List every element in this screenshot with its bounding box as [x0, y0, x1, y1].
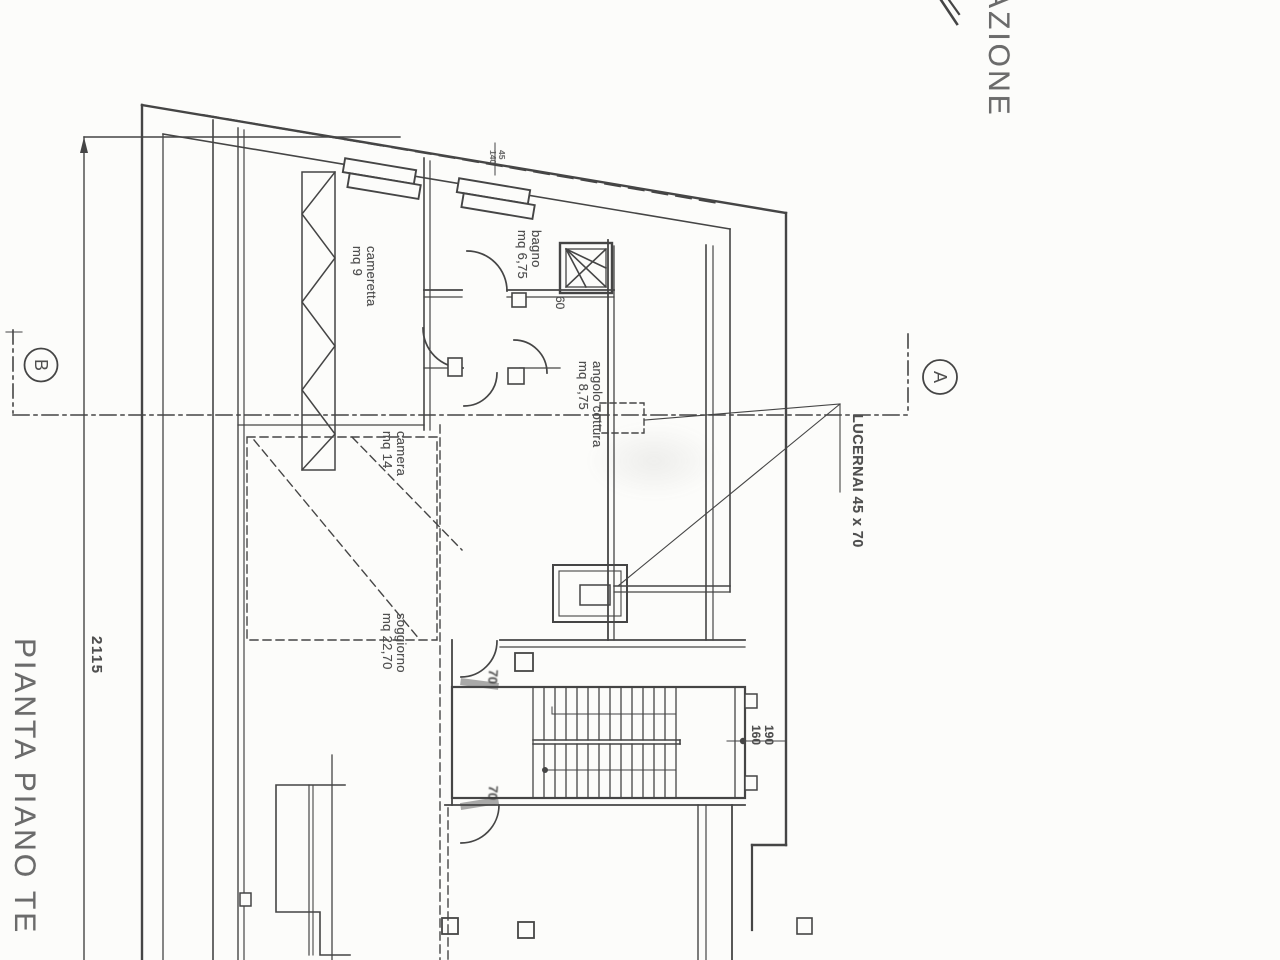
plan-title: PIANTA PIANO TE: [9, 638, 41, 935]
room-name: bagno: [529, 230, 543, 279]
section-line: [6, 330, 957, 415]
roof-projection-dashed: [247, 425, 462, 960]
room-name: angolo cottura: [590, 361, 604, 448]
column-post: [518, 922, 534, 938]
stair-dim-bottom: 160: [749, 725, 762, 745]
window-2: [455, 178, 538, 219]
stair-dimension-label: 190 160: [749, 725, 775, 745]
room-label-bagno: bagno mq 6,75: [516, 230, 543, 279]
door-arc: [461, 805, 499, 843]
room-label-soggiorno: soggiorno mq 22,70: [381, 613, 408, 673]
overall-dimension-label: 2115: [88, 636, 104, 675]
room-label-camera: camera mq 14: [381, 431, 408, 476]
section-marker-b: B: [24, 348, 58, 382]
room-name: camera: [394, 431, 408, 476]
dimension-arrow: [80, 137, 88, 153]
building-outline: [142, 0, 959, 960]
room-area: mq 22,70: [381, 613, 395, 673]
column-post: [515, 653, 533, 671]
bagno-door-dimension: 60: [553, 296, 566, 309]
leader-arrow-2: [618, 404, 840, 586]
room-label-angolo-cottura: angolo cottura mq 8,75: [577, 361, 604, 448]
column-post: [442, 918, 458, 934]
window-dim-height: 140: [488, 150, 497, 164]
room-area: mq 14: [381, 431, 395, 476]
room-name: soggiorno: [394, 613, 408, 673]
stair-dim-top: 190: [762, 725, 775, 745]
door-width-label-b: 70: [485, 785, 500, 800]
cut-letter-stroke2: [949, 0, 959, 14]
room-name: cameretta: [364, 246, 378, 307]
room-label-cameretta: cameretta mq 9: [351, 246, 378, 307]
door-arc: [467, 251, 507, 291]
leader-arrow-1: [645, 404, 840, 420]
room-area: mq 6,75: [516, 230, 530, 279]
door-leaf-smudge: [464, 801, 495, 806]
shower: [560, 243, 612, 293]
section-marker-a: A: [923, 360, 957, 394]
stairs: [452, 687, 786, 798]
column-post: [797, 918, 812, 934]
window-dim-width: 45: [497, 150, 506, 164]
door-jamb: [448, 358, 462, 376]
door-jamb: [512, 293, 526, 307]
window-1: [341, 158, 424, 199]
skylight-soggiorno: [553, 565, 627, 622]
window-dimension-label: 45 140: [488, 150, 506, 164]
skylight-note-label: LUCERNAI 45 x 70: [849, 414, 864, 548]
room-area: mq 9: [351, 246, 365, 307]
door-swings: [423, 251, 547, 843]
door-jamb: [508, 368, 524, 384]
floor-plan-scan: PIANTA PIANO TE AZIONE 2115 cameretta mq…: [0, 0, 1280, 960]
column-post: [240, 893, 251, 906]
header-title-partial: AZIONE: [983, 0, 1015, 118]
floor-plan-drawing: [0, 0, 1280, 960]
room-area: mq 8,75: [577, 361, 591, 448]
door-width-label-a: 70: [485, 669, 500, 684]
interior-walls: [213, 120, 812, 960]
door-arc: [464, 373, 497, 406]
skylight-cottura-dashed: [600, 403, 644, 433]
cut-letter-stroke: [941, 0, 957, 24]
